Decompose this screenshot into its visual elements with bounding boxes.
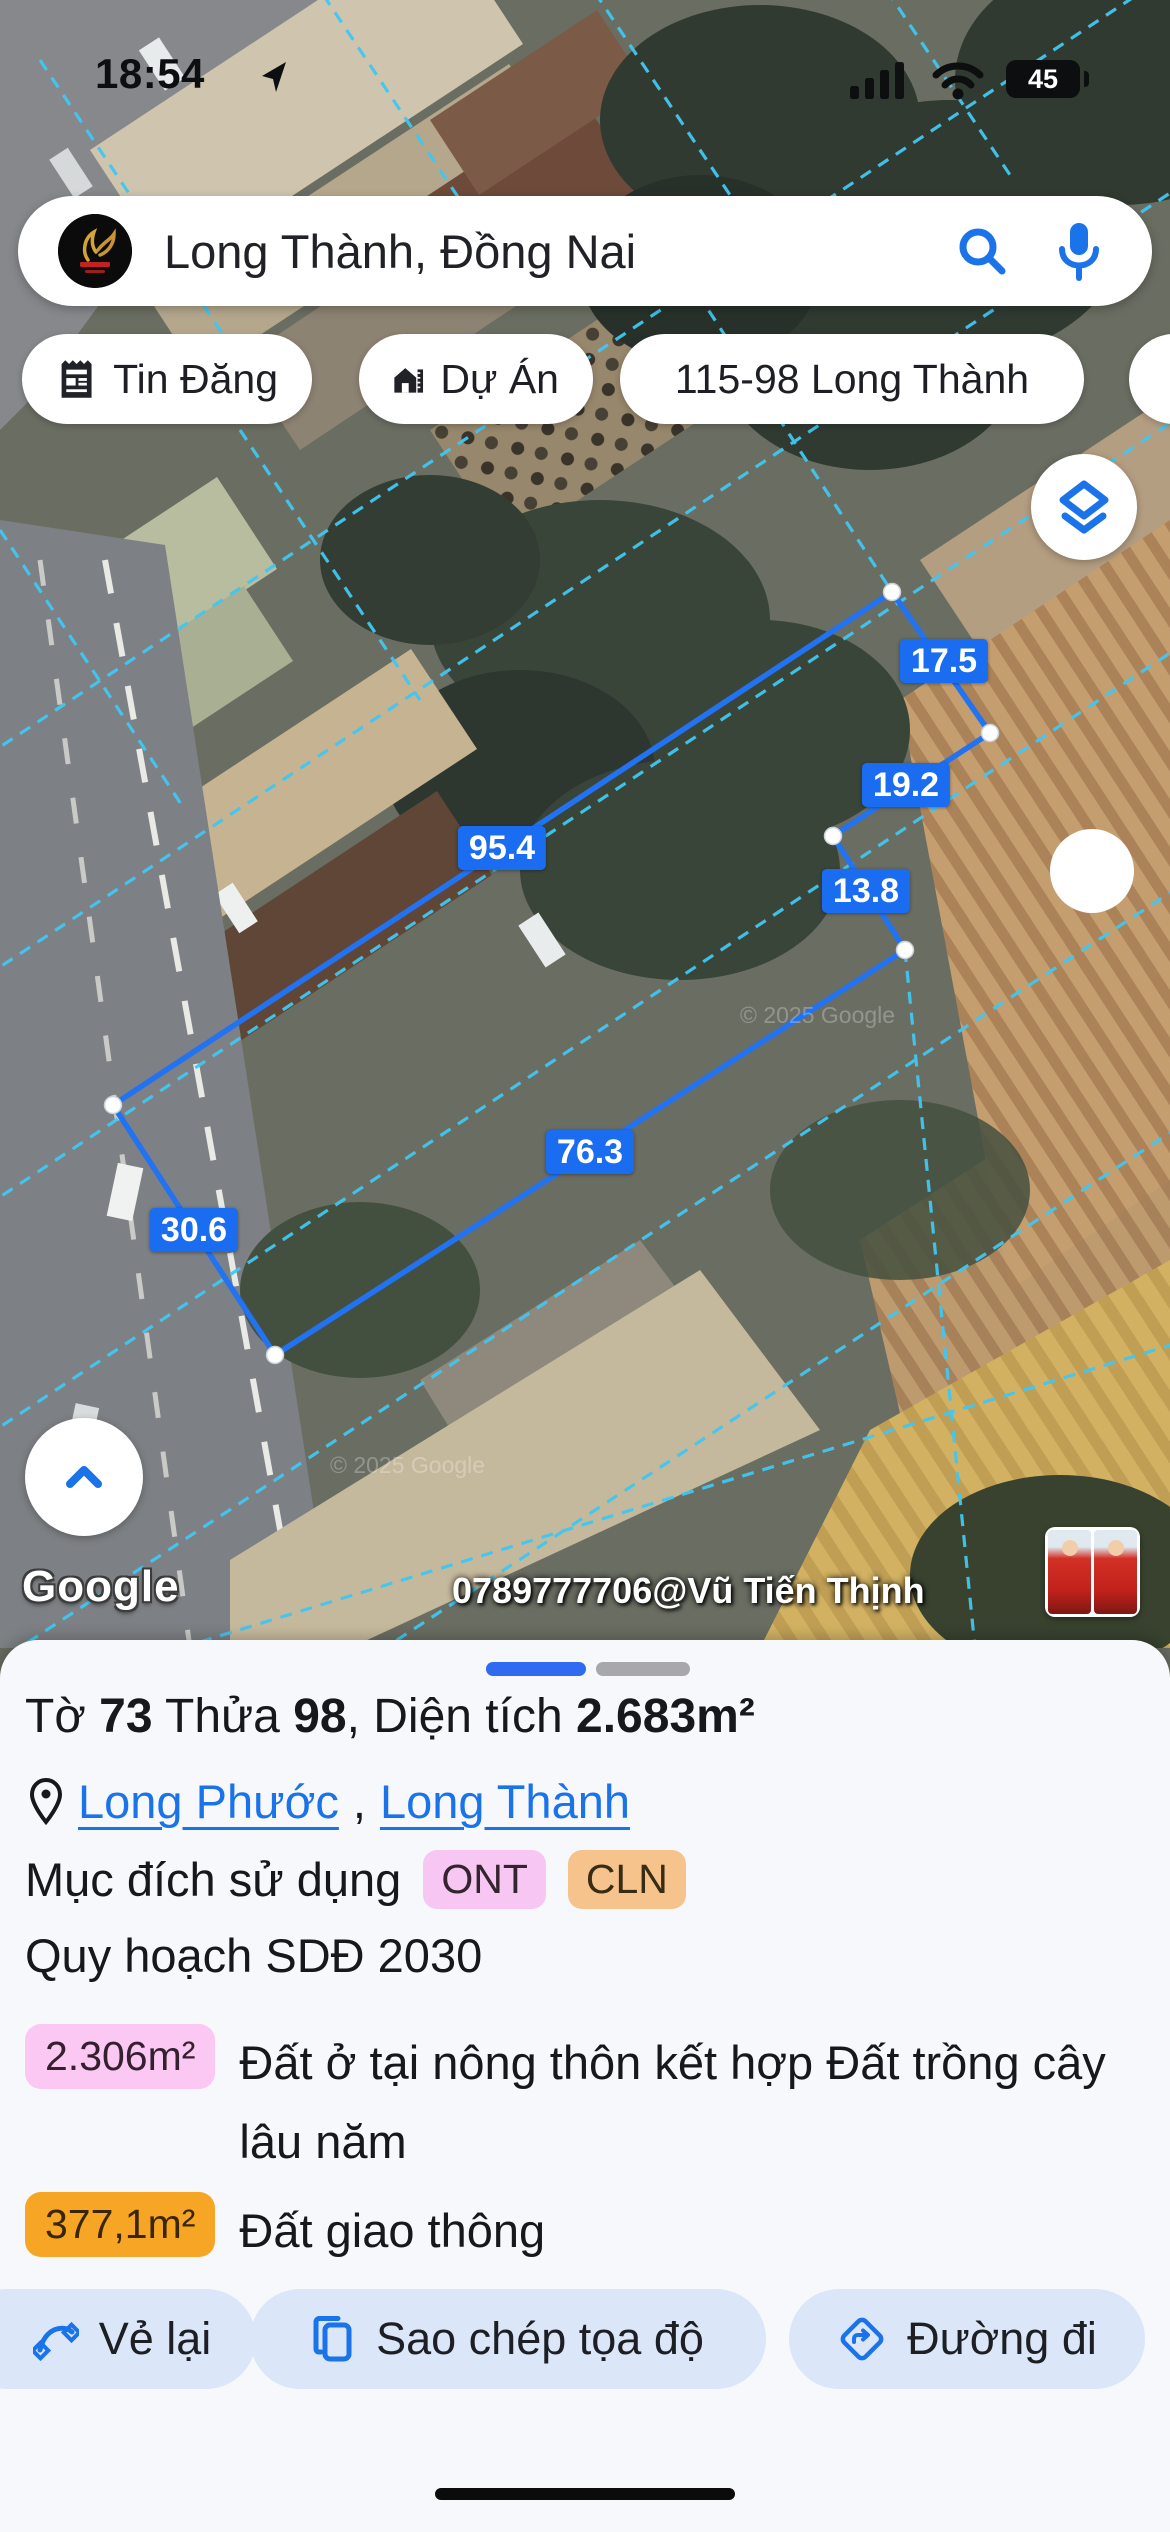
mic-icon[interactable]	[1054, 221, 1104, 281]
newspaper-icon	[56, 357, 97, 401]
wifi-icon	[932, 62, 984, 100]
location-arrow-icon	[252, 56, 294, 98]
chevron-up-icon	[54, 1447, 114, 1507]
button-label: Đường đi	[907, 2313, 1097, 2365]
area-row-traffic: 377,1m² Đất giao thông	[25, 2192, 545, 2271]
status-time: 18:54	[95, 50, 205, 98]
map-copyright: © 2025 Google	[330, 1452, 485, 1479]
location-row: Long Phước, Long Thành	[28, 1774, 630, 1829]
draw-icon	[33, 2316, 79, 2362]
measurement-label: 17.5	[900, 639, 988, 683]
search-bar[interactable]: Long Thành, Đồng Nai	[18, 196, 1152, 306]
search-icon[interactable]	[954, 223, 1010, 279]
chip-label: Tin Đăng	[113, 356, 278, 403]
measurement-label: 30.6	[150, 1208, 238, 1252]
directions-icon	[837, 2314, 887, 2364]
layers-icon	[1053, 476, 1115, 538]
purpose-label: Mục đích sử dụng	[25, 1852, 401, 1907]
app-logo	[58, 214, 132, 288]
pager-active	[486, 1662, 586, 1676]
button-label: Sao chép tọa độ	[376, 2313, 704, 2365]
copy-icon	[312, 2314, 356, 2364]
button-label: Vẻ lại	[99, 2313, 212, 2365]
battery-percent: 45	[1028, 64, 1058, 95]
parcel-title: Tờ 73 Thửa 98, Diện tích 2.683m²	[25, 1689, 755, 1744]
comma: ,	[353, 1774, 366, 1829]
district-link[interactable]: Long Thành	[380, 1774, 630, 1829]
measurement-label: 19.2	[862, 763, 950, 807]
screen: 17.5 19.2 13.8 95.4 76.3 30.6 © 2025 Goo…	[0, 0, 1170, 2532]
battery-icon: 45	[1006, 60, 1080, 98]
measurement-label: 76.3	[546, 1130, 634, 1174]
purpose-row: Mục đích sử dụng ONT CLN	[25, 1850, 686, 1909]
pager-inactive	[596, 1662, 690, 1676]
home-indicator[interactable]	[435, 2488, 735, 2500]
search-input[interactable]: Long Thành, Đồng Nai	[164, 224, 954, 279]
battery-cap	[1084, 71, 1089, 87]
redraw-button[interactable]: Vẻ lại	[0, 2289, 256, 2389]
map-pin-icon	[28, 1777, 64, 1827]
owner-watermark: 0789777706@Vũ Tiến Thịnh	[452, 1570, 925, 1612]
area-badge-pink: 2.306m²	[25, 2024, 215, 2089]
expand-up-button[interactable]	[25, 1418, 143, 1536]
area-row-residential: 2.306m² Đất ở tại nông thôn kết hợp Đất …	[25, 2024, 1170, 2182]
directions-button[interactable]: Đường đi	[789, 2289, 1145, 2389]
area-desc: Đất ở tại nông thôn kết hợp Đất trồng câ…	[239, 2024, 1170, 2182]
signal-icon	[850, 62, 908, 100]
photo-thumbnail[interactable]	[1045, 1527, 1140, 1617]
map-copyright: © 2025 Google	[740, 1002, 895, 1029]
map-marker-circle[interactable]	[1050, 829, 1134, 913]
ward-link[interactable]: Long Phước	[78, 1774, 339, 1829]
chip-label: Dự Án	[440, 356, 559, 403]
area-badge-orange: 377,1m²	[25, 2192, 215, 2257]
chip-address[interactable]: 115-98 Long Thành	[620, 334, 1084, 424]
chip-tin-dang[interactable]: Tin Đăng	[22, 334, 312, 424]
badge-ont: ONT	[423, 1850, 546, 1909]
map-layers-button[interactable]	[1031, 454, 1137, 560]
google-watermark: Google	[22, 1562, 180, 1612]
project-house-icon	[393, 357, 424, 401]
chip-label: 115-98 Long Thành	[675, 356, 1029, 403]
area-desc: Đất giao thông	[239, 2192, 545, 2271]
chip-du-an[interactable]: Dự Án	[359, 334, 593, 424]
plan-label: Quy hoạch SDĐ 2030	[25, 1928, 482, 1983]
copy-coordinates-button[interactable]: Sao chép tọa độ	[250, 2289, 766, 2389]
badge-cln: CLN	[568, 1850, 686, 1909]
measurement-label: 13.8	[822, 869, 910, 913]
measurement-label: 95.4	[458, 826, 546, 870]
